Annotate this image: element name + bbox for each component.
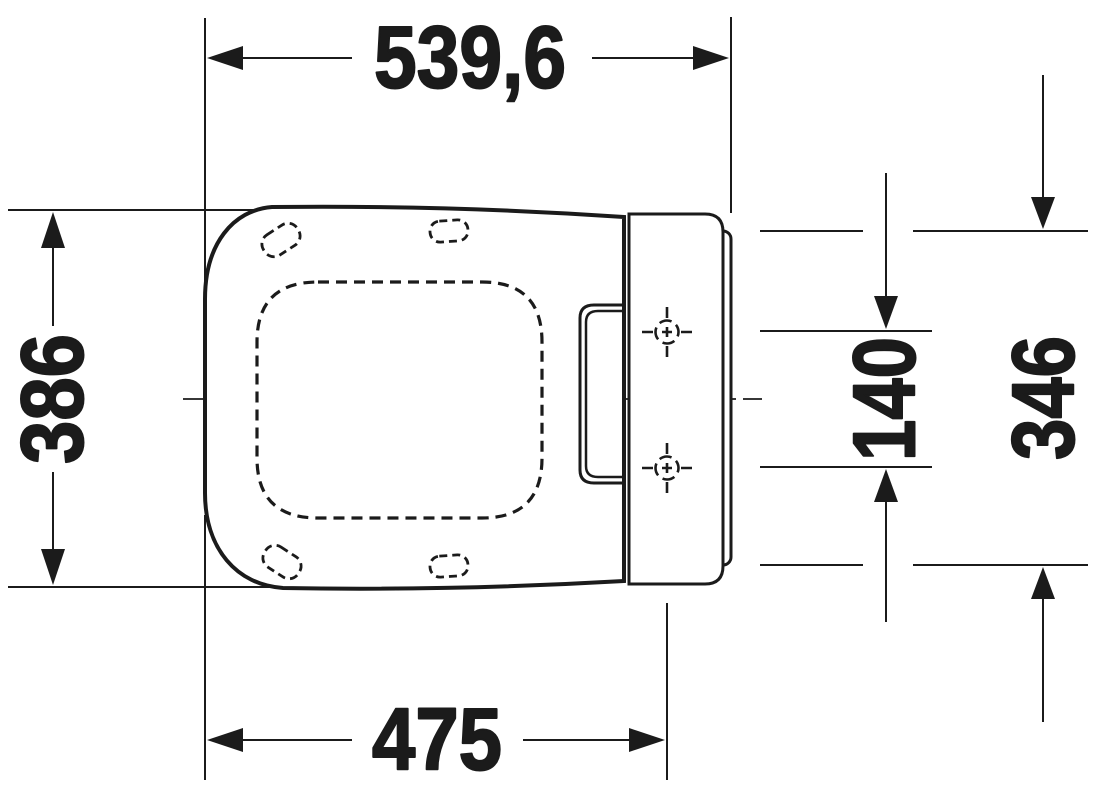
arrow-up-icon: [1031, 567, 1055, 599]
dim-label-front-to-holes: 475: [372, 690, 502, 789]
drawing-canvas: 539,6 386 475 140 346: [0, 0, 1100, 790]
technical-drawing: 539,6 386 475 140 346: [0, 0, 1100, 790]
dim-label-seat-depth: 386: [3, 334, 102, 464]
arrow-right-icon: [629, 728, 665, 752]
dimension-hole-spacing: 140: [835, 173, 934, 622]
dim-label-plate-width: 346: [994, 336, 1093, 460]
arrow-down-icon: [874, 296, 898, 329]
fixture: [205, 207, 731, 589]
arrow-down-icon: [41, 549, 65, 585]
dimension-overall-length: 539,6: [207, 8, 729, 107]
dimension-seat-depth: 386: [3, 212, 102, 585]
hinge-cover: [629, 214, 723, 584]
arrow-right-icon: [693, 46, 729, 70]
arrow-left-icon: [207, 728, 243, 752]
arrow-left-icon: [207, 46, 243, 70]
dim-label-hole-spacing: 140: [835, 337, 934, 461]
arrow-up-icon: [41, 212, 65, 248]
dimension-plate-width: 346: [994, 75, 1093, 722]
arrow-up-icon: [874, 469, 898, 502]
arrow-down-icon: [1031, 197, 1055, 229]
dimension-front-to-holes: 475: [207, 690, 665, 789]
seat-outline: [205, 207, 624, 589]
dim-label-overall-length: 539,6: [374, 8, 566, 107]
